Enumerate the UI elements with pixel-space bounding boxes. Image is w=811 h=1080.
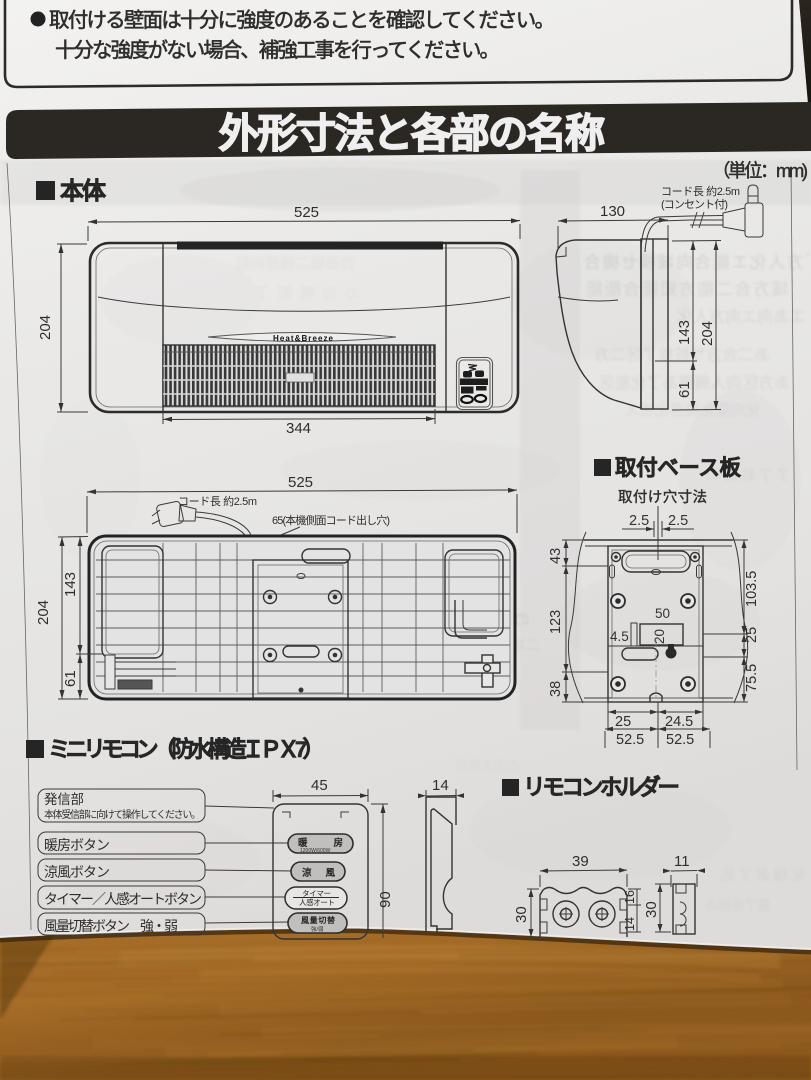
svg-text:取付ける壁面は十分に強度のあることを確認してください。: 取付ける壁面は十分に強度のあることを確認してください。 [49,9,555,32]
svg-text:タイマー: タイマー [302,889,331,898]
svg-text:タイマー／人感オートボタン: タイマー／人感オートボタン [44,891,202,907]
svg-text:123: 123 [548,610,564,634]
svg-text:204: 204 [35,600,52,625]
svg-text:204: 204 [699,321,716,346]
svg-text:能了感検の: 能了感検の [705,898,770,913]
svg-text:204: 204 [37,315,54,340]
svg-text:Heat&Breeze: Heat&Breeze [273,334,334,343]
svg-text:61: 61 [676,381,693,398]
svg-text:取付ベース板: 取付ベース板 [615,456,741,480]
svg-text:2.5: 2.5 [668,513,688,529]
svg-text:人感オート: 人感オート [299,897,335,907]
svg-text:30: 30 [513,906,530,923]
svg-text:十分な強度がない場合、補強工事を行ってください。: 十分な強度がない場合、補強工事を行ってください。 [55,39,500,62]
svg-text:50: 50 [655,606,670,621]
svg-text:14: 14 [432,777,449,794]
svg-text:゙方人化エ能合向域検セ機合: ゙方人化エ能合向域検セ機合 [584,253,810,272]
svg-text:30: 30 [643,901,660,918]
svg-text:143: 143 [62,572,79,597]
svg-text:38: 38 [548,681,564,697]
svg-text:強/弱: 強/弱 [311,925,324,933]
svg-text:(コンセント付): (コンセント付) [661,198,728,211]
svg-text:20: 20 [652,629,667,644]
svg-text:リモコンホルダー: リモコンホルダー [523,774,680,800]
svg-text:コード長 約2.5m: コード長 約2.5m [178,494,257,508]
svg-text:合あ機二機感向粧: 合あ機二機感向粧 [235,255,355,272]
svg-text:130: 130 [600,203,625,220]
svg-text:103.5: 103.5 [744,571,760,607]
svg-text:エあ向エ向方人化: エあ向エ向方人化 [677,308,805,326]
svg-text:52.5: 52.5 [616,732,644,748]
svg-text:風量切替: 風量切替 [301,915,335,925]
svg-text:涼 風: 涼 風 [302,867,335,879]
svg-text:14: 14 [623,917,637,931]
svg-text:1200W/600W: 1200W/600W [300,848,331,854]
svg-text:゙域方合二能方知能合能能: ゙域方合二能方知能合能能 [586,280,795,299]
svg-text:16: 16 [623,890,637,904]
svg-text:取付け穴寸法: 取付け穴寸法 [618,489,707,506]
svg-text:4.5: 4.5 [610,629,629,644]
svg-text:52.5: 52.5 [666,732,694,748]
svg-text:暖房ボタン: 暖房ボタン [44,837,110,853]
svg-text:143: 143 [676,320,693,345]
svg-text:あ方区向人機感あ了化能区: あ方区向人機感あ了化能区 [598,374,790,392]
svg-text:344: 344 [286,420,311,437]
svg-text:61: 61 [62,670,79,687]
svg-text:ミニリモコン（防水構造ＩＰＸ7）: ミニリモコン（防水構造ＩＰＸ7） [48,737,325,762]
svg-text:75.5: 75.5 [744,664,760,692]
svg-text:45: 45 [311,777,328,794]
svg-text:コード長 約2.5m: コード長 約2.5m [661,184,740,198]
svg-text:（単位：mm): （単位：mm) [712,160,808,181]
svg-text:65(本機側面コード出し穴): 65(本機側面コード出し穴) [272,513,390,527]
svg-text:本体: 本体 [60,178,107,205]
svg-text:25: 25 [744,627,760,643]
svg-text:11: 11 [674,853,690,870]
svg-text:90: 90 [377,891,394,908]
svg-text:39: 39 [572,853,589,870]
svg-text:の化エ化合: の化エ化合 [455,758,520,773]
svg-text:本体受信部に向けて操作してください。: 本体受信部に向けて操作してください。 [44,808,201,821]
svg-text:525: 525 [288,474,313,491]
svg-text:24.5: 24.5 [665,714,693,730]
svg-text:化機あ゙了化: 化機あ゙了化 [721,867,805,883]
svg-text:外形寸法と各部の名称: 外形寸法と各部の名称 [219,112,605,156]
svg-text:43: 43 [548,548,564,564]
svg-text:25: 25 [615,714,631,730]
svg-text:525: 525 [294,204,319,221]
svg-text:風量切替ボタン 強・弱: 風量切替ボタン 強・弱 [44,918,178,934]
svg-text:発信部: 発信部 [44,792,84,807]
svg-text:涼風ボタン: 涼風ボタン [44,864,110,880]
svg-text:2.5: 2.5 [629,513,649,529]
